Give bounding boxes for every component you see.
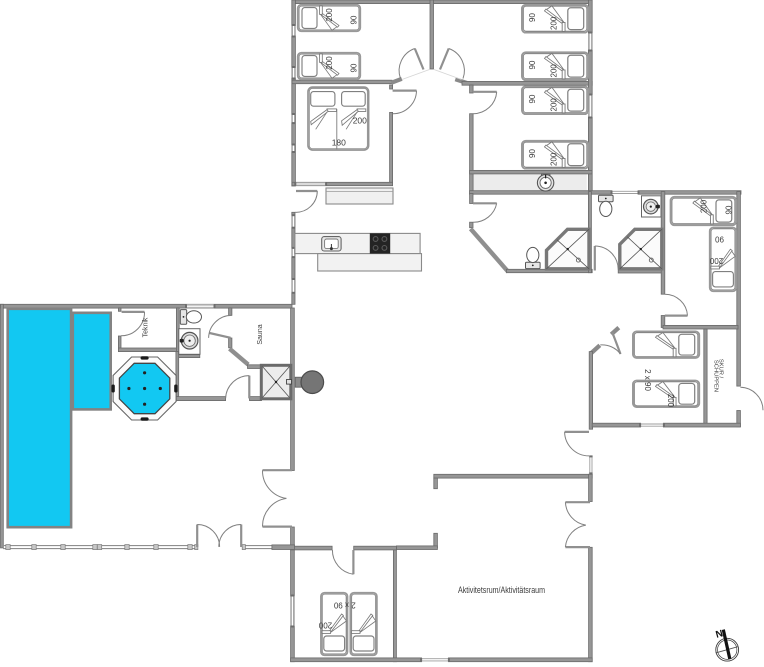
svg-text:90: 90 bbox=[528, 60, 537, 69]
svg-text:90: 90 bbox=[350, 63, 359, 72]
svg-text:90: 90 bbox=[725, 205, 734, 214]
svg-text:200: 200 bbox=[325, 56, 334, 70]
svg-text:200: 200 bbox=[550, 16, 559, 30]
svg-text:200: 200 bbox=[550, 98, 559, 112]
svg-text:Sauna: Sauna bbox=[257, 324, 264, 344]
svg-text:SCHUPPEN: SCHUPPEN bbox=[713, 360, 719, 392]
svg-text:90: 90 bbox=[528, 13, 537, 22]
svg-text:180: 180 bbox=[332, 137, 346, 147]
svg-text:Aktivitetsrum/Aktivitätsraum: Aktivitetsrum/Aktivitätsraum bbox=[458, 585, 545, 596]
svg-text:200: 200 bbox=[550, 152, 559, 166]
svg-text:90: 90 bbox=[715, 235, 724, 244]
svg-text:200: 200 bbox=[325, 8, 334, 22]
svg-text:90: 90 bbox=[528, 94, 537, 103]
svg-text:200: 200 bbox=[666, 394, 675, 408]
svg-text:200: 200 bbox=[709, 256, 723, 265]
svg-text:Teknik: Teknik bbox=[142, 317, 149, 337]
svg-text:90: 90 bbox=[350, 15, 359, 24]
svg-text:200: 200 bbox=[318, 621, 332, 630]
svg-text:200: 200 bbox=[353, 115, 367, 125]
svg-text:2 x 90: 2 x 90 bbox=[643, 369, 652, 391]
svg-text:2 x 90: 2 x 90 bbox=[333, 601, 355, 610]
svg-text:200: 200 bbox=[550, 64, 559, 78]
svg-text:90: 90 bbox=[528, 149, 537, 158]
svg-text:200: 200 bbox=[700, 199, 709, 213]
